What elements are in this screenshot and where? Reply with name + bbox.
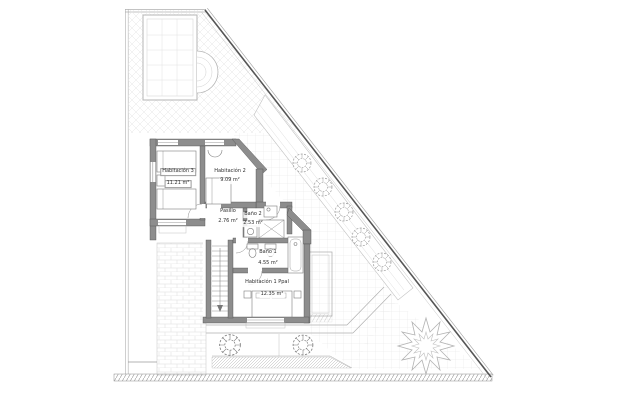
room-area-text: 11.21 m²	[165, 180, 192, 188]
room-label-habitacion-3: Habitación 3	[160, 168, 196, 176]
room-label-habitacion-2: Habitación 2	[213, 169, 247, 175]
room-area-habitacion-1-ppal: 12.35 m²	[260, 292, 285, 298]
room-area-bano-1: 4.55 m²	[257, 261, 279, 267]
sidewalk-strip	[114, 374, 492, 381]
room-name-text: Pasillo	[219, 209, 237, 215]
room-area-text: 12.35 m²	[260, 292, 285, 298]
room-name-text: Habitación 3	[160, 168, 196, 176]
room-label-pasillo: Pasillo	[219, 209, 237, 215]
room-area-habitacion-2: 9.09 m²	[219, 178, 241, 184]
driveway-brick-path	[157, 243, 206, 375]
room-area-text: 9.09 m²	[219, 178, 241, 184]
room-name-text: Baño 1	[258, 250, 278, 256]
room-area-text: 2.53 m²	[242, 221, 264, 227]
room-area-text: 2.76 m²	[217, 219, 239, 225]
room-area-bano-2: 2.53 m²	[242, 221, 264, 227]
terrace-plant-icons	[220, 335, 313, 356]
room-area-habitacion-3: 11.21 m²	[165, 180, 192, 188]
room-area-text: 4.55 m²	[257, 261, 279, 267]
room-name-text: Baño 2	[243, 212, 263, 218]
room-label-bano-2: Baño 2	[243, 212, 263, 218]
floor-plan-page: Habitación 3 11.21 m² Habitación 2 9.09 …	[0, 0, 620, 406]
floor-plan-drawing	[0, 0, 620, 406]
room-area-pasillo: 2.76 m²	[217, 219, 239, 225]
room-name-text: Habitación 2	[213, 169, 247, 175]
room-label-bano-1: Baño 1	[258, 250, 278, 256]
room-label-habitacion-1-ppal: Habitación 1 Ppal	[244, 280, 290, 286]
room-name-text: Habitación 1 Ppal	[244, 280, 290, 286]
